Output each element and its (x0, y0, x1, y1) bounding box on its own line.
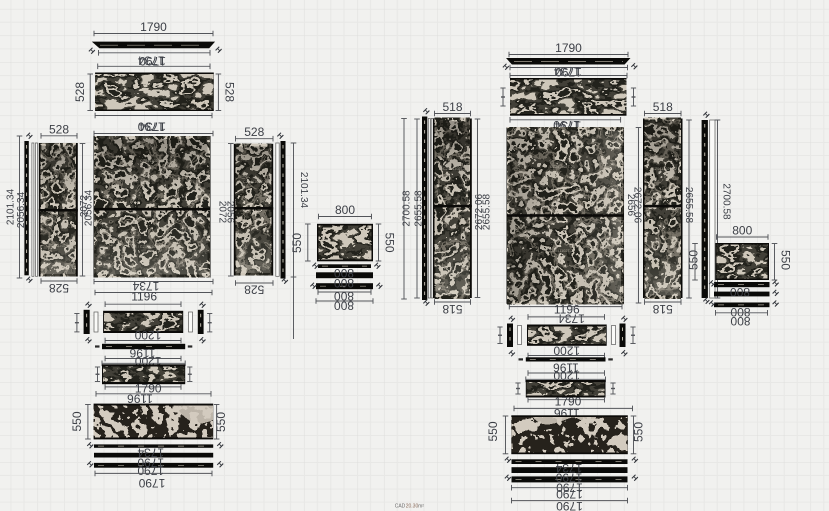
svg-text:CZ041102T-16: CZ041102T-16 (140, 159, 165, 163)
svg-text:20.30: 20.30 (406, 504, 419, 510)
svg-text:2655.58: 2655.58 (482, 193, 493, 230)
svg-text:1790: 1790 (137, 119, 164, 133)
svg-text:2101.34: 2101.34 (298, 172, 309, 209)
svg-text:1790: 1790 (555, 41, 582, 55)
svg-text:518: 518 (442, 302, 462, 316)
svg-text:1196: 1196 (131, 290, 157, 304)
svg-text:CZ041102T-41: CZ041102T-41 (443, 167, 468, 171)
svg-text:2672.06: 2672.06 (632, 187, 643, 224)
svg-text:518: 518 (653, 100, 673, 114)
svg-text:CAD: CAD (395, 504, 406, 510)
svg-text:2700.58: 2700.58 (721, 183, 732, 220)
svg-text:800: 800 (730, 285, 750, 299)
svg-text:800: 800 (730, 314, 750, 328)
svg-text:518: 518 (442, 100, 462, 114)
svg-text:550: 550 (486, 421, 500, 441)
svg-text:550: 550 (70, 411, 84, 431)
svg-text:528: 528 (49, 122, 69, 136)
svg-text:2700.58: 2700.58 (402, 190, 413, 227)
svg-text:1790: 1790 (137, 464, 164, 478)
svg-text:CZ041102T-39: CZ041102T-39 (243, 180, 268, 184)
svg-text:CZ041102T-42: CZ041102T-42 (652, 167, 677, 171)
svg-text:528: 528 (73, 82, 87, 102)
svg-text:800: 800 (335, 203, 355, 217)
svg-text:550: 550 (632, 422, 646, 442)
svg-text:1734: 1734 (553, 65, 580, 79)
svg-text:CZ041102T-22: CZ041102T-22 (550, 249, 575, 253)
svg-text:1734: 1734 (558, 311, 585, 325)
svg-text:550: 550 (383, 232, 397, 252)
svg-text:1196: 1196 (127, 391, 153, 405)
svg-text:528: 528 (223, 82, 237, 102)
svg-text:CZ041102T-21: CZ041102T-21 (550, 165, 575, 169)
svg-text:800: 800 (334, 276, 354, 290)
svg-text:550: 550 (779, 250, 793, 270)
svg-text:550: 550 (214, 412, 228, 432)
svg-text:1790: 1790 (556, 499, 583, 511)
svg-text:528: 528 (244, 125, 264, 139)
svg-text:CZ041102T-38: CZ041102T-38 (48, 180, 73, 184)
svg-text:2101.34: 2101.34 (6, 188, 17, 225)
svg-text:528: 528 (49, 281, 69, 295)
svg-text:800: 800 (732, 224, 752, 238)
svg-text:1790: 1790 (138, 476, 165, 490)
svg-text:528: 528 (244, 283, 264, 297)
svg-text:800: 800 (334, 298, 354, 312)
svg-text:550: 550 (290, 233, 304, 253)
svg-text:1734: 1734 (137, 54, 164, 68)
svg-text:CZ041102T-17: CZ041102T-17 (140, 245, 165, 249)
svg-text:2655.58: 2655.58 (683, 187, 694, 224)
svg-text:518: 518 (652, 302, 672, 316)
svg-text:m²: m² (418, 504, 424, 510)
svg-text:2056.34: 2056.34 (84, 189, 95, 226)
svg-text:550: 550 (687, 250, 701, 270)
svg-text:CZ041102T-38: CZ041102T-38 (48, 244, 73, 248)
svg-text:1790: 1790 (140, 20, 167, 34)
